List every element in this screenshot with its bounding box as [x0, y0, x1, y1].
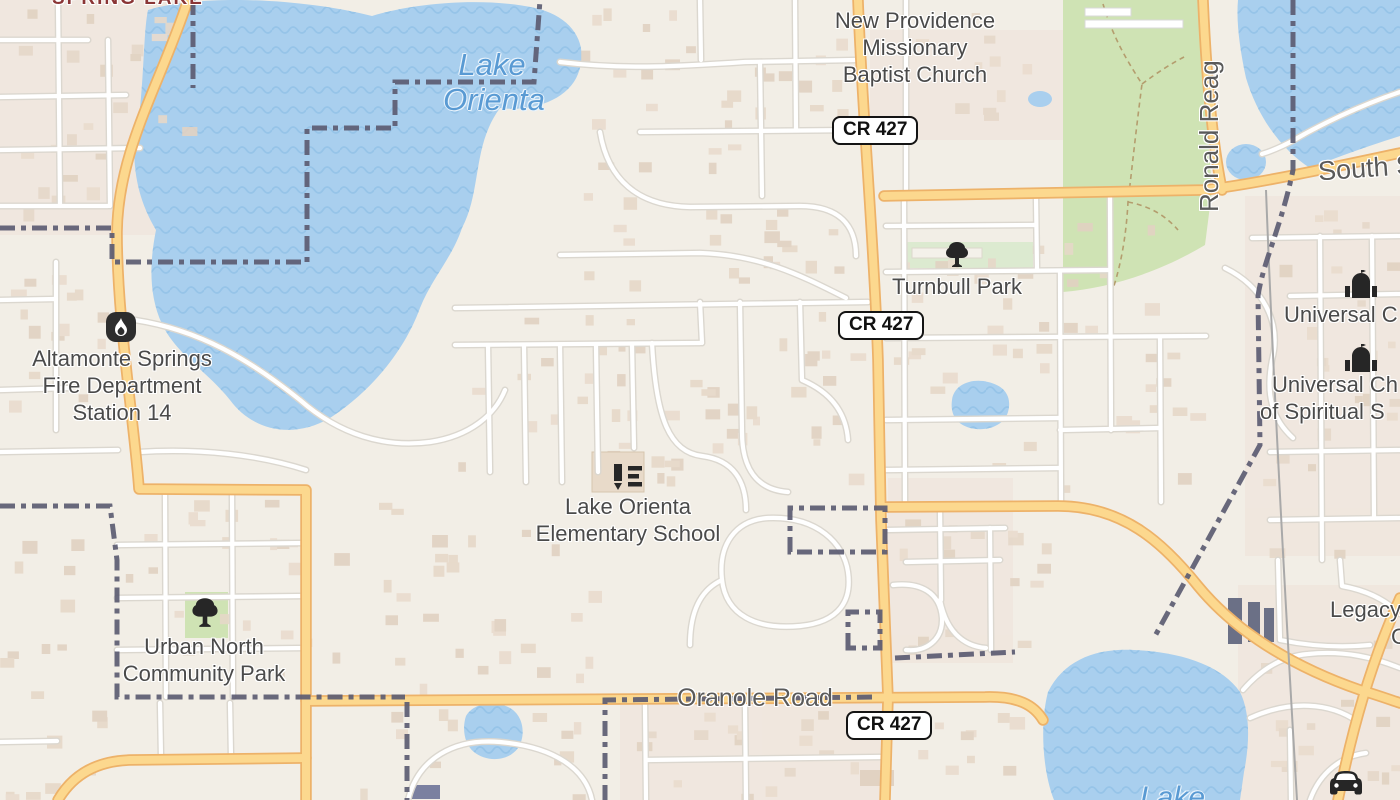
school-icon[interactable] — [608, 462, 648, 492]
poi-fire-station[interactable]: Altamonte Springs Fire Department Statio… — [32, 346, 212, 426]
route-shield-cr427-top: CR 427 — [832, 116, 918, 145]
universal-college-church-icon[interactable] — [1341, 270, 1381, 300]
poi-turnbull-park[interactable]: Turnbull Park — [892, 274, 1022, 301]
poi-legacy[interactable]: Legacy C — [1330, 597, 1400, 651]
lake-bottom-label: Lake — [1140, 780, 1205, 800]
poi-urban-north-park[interactable]: Urban North Community Park — [123, 634, 286, 688]
neighborhood-label: SPRING LAKE — [52, 0, 204, 10]
poi-universal-college[interactable]: Universal C — [1284, 302, 1398, 329]
map-canvas[interactable]: SPRING LAKE Lake Orienta Lake New Provid… — [0, 0, 1400, 800]
lake-orienta-label-line2: Orienta — [443, 81, 545, 119]
road-label-south-street: South S — [1317, 149, 1400, 189]
poi-new-providence-church[interactable]: New Providence Missionary Baptist Church — [835, 8, 995, 88]
lake-orienta-label-line1: Lake — [458, 46, 525, 84]
route-shield-cr427-middle: CR 427 — [838, 311, 924, 340]
universal-church-icon[interactable] — [1341, 344, 1381, 374]
poi-universal-church[interactable]: Universal Ch of Spiritual S — [1272, 372, 1398, 426]
car-icon[interactable] — [1326, 768, 1366, 800]
road-label-ronald-reagan: Ronald Reag — [1194, 60, 1226, 212]
road-label-oranole: Oranole Road — [677, 683, 833, 714]
urban-north-tree-icon[interactable] — [190, 596, 220, 628]
fire-station-icon[interactable] — [104, 310, 138, 344]
turnbull-park-tree-icon[interactable] — [944, 240, 970, 268]
poi-lake-orienta-school[interactable]: Lake Orienta Elementary School — [536, 494, 721, 548]
route-shield-cr427-bottom: CR 427 — [846, 711, 932, 740]
